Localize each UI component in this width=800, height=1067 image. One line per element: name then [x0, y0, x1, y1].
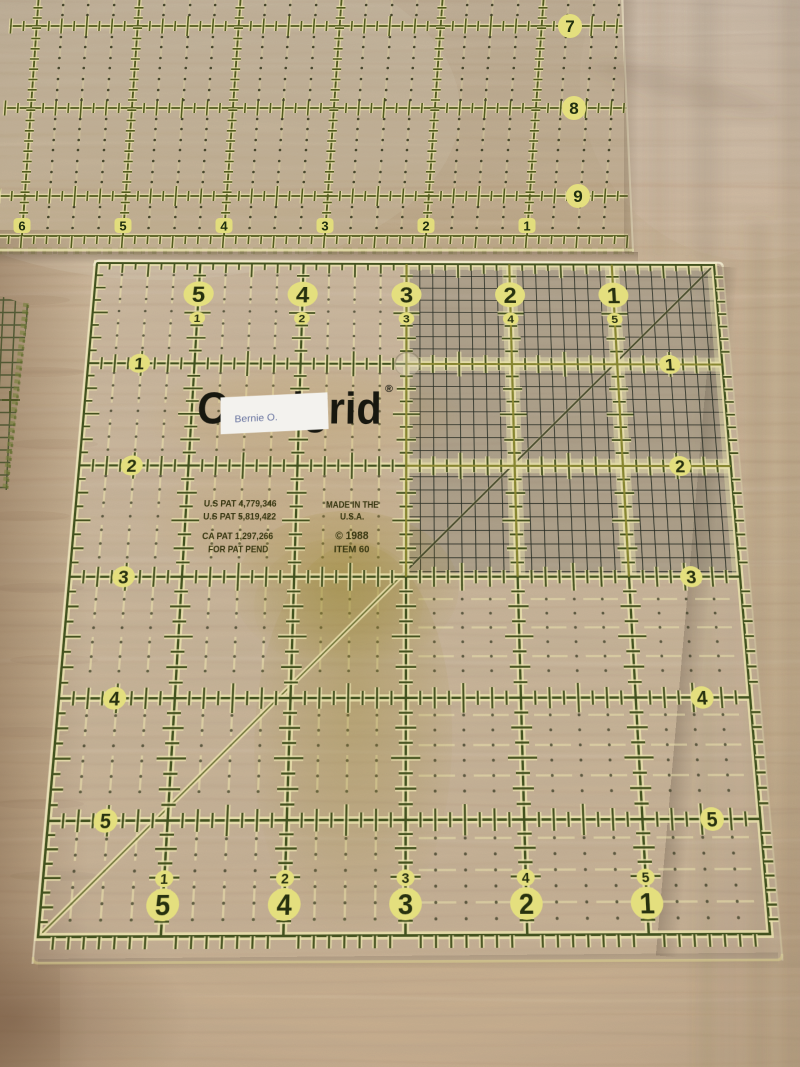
- svg-text:4: 4: [296, 282, 311, 307]
- svg-text:1: 1: [639, 886, 656, 920]
- svg-text:1: 1: [664, 357, 675, 375]
- svg-text:CA PAT 1,297,266: CA PAT 1,297,266: [202, 531, 274, 541]
- svg-text:1: 1: [523, 219, 530, 234]
- svg-text:Bernie O.: Bernie O.: [235, 412, 278, 425]
- svg-text:8: 8: [569, 99, 578, 118]
- svg-text:U.S PAT 4,779,346: U.S PAT 4,779,346: [204, 499, 278, 509]
- svg-text:3: 3: [686, 568, 698, 588]
- svg-text:ITEM 60: ITEM 60: [334, 544, 370, 554]
- svg-text:3: 3: [400, 282, 413, 307]
- svg-text:4: 4: [696, 689, 708, 710]
- svg-text:4: 4: [220, 219, 228, 234]
- svg-text:5: 5: [99, 811, 112, 833]
- svg-text:3: 3: [321, 219, 328, 234]
- svg-text:2: 2: [298, 313, 305, 325]
- svg-text:5: 5: [641, 870, 650, 886]
- svg-text:4: 4: [276, 888, 292, 922]
- svg-text:4: 4: [108, 689, 120, 710]
- svg-text:2: 2: [422, 219, 429, 234]
- svg-text:2: 2: [675, 458, 686, 477]
- svg-text:5: 5: [611, 314, 618, 326]
- svg-text:9: 9: [573, 187, 582, 206]
- svg-text:U.S.A.: U.S.A.: [340, 512, 364, 522]
- svg-text:MADE IN THE: MADE IN THE: [326, 500, 379, 510]
- svg-text:2: 2: [126, 457, 138, 476]
- svg-text:5: 5: [119, 219, 126, 234]
- svg-text:5: 5: [154, 888, 171, 922]
- svg-text:2: 2: [503, 283, 517, 308]
- svg-text:FOR PAT PEND: FOR PAT PEND: [208, 544, 269, 554]
- svg-text:3: 3: [402, 871, 410, 887]
- svg-text:2: 2: [281, 872, 289, 888]
- svg-text:© 1988: © 1988: [335, 530, 369, 542]
- svg-text:1: 1: [134, 356, 145, 374]
- svg-text:5: 5: [706, 810, 719, 832]
- svg-text:1: 1: [193, 313, 200, 325]
- svg-text:1: 1: [160, 872, 169, 888]
- svg-text:5: 5: [191, 282, 206, 307]
- svg-text:3: 3: [398, 887, 413, 921]
- svg-text:3: 3: [403, 314, 410, 326]
- svg-text:6: 6: [18, 219, 25, 234]
- svg-text:3: 3: [118, 568, 130, 588]
- svg-text:2: 2: [518, 887, 534, 921]
- svg-text:U.S PAT 5,819,422: U.S PAT 5,819,422: [203, 512, 277, 522]
- svg-text:7: 7: [565, 17, 574, 36]
- svg-text:1: 1: [606, 283, 621, 308]
- svg-text:®: ®: [385, 384, 393, 396]
